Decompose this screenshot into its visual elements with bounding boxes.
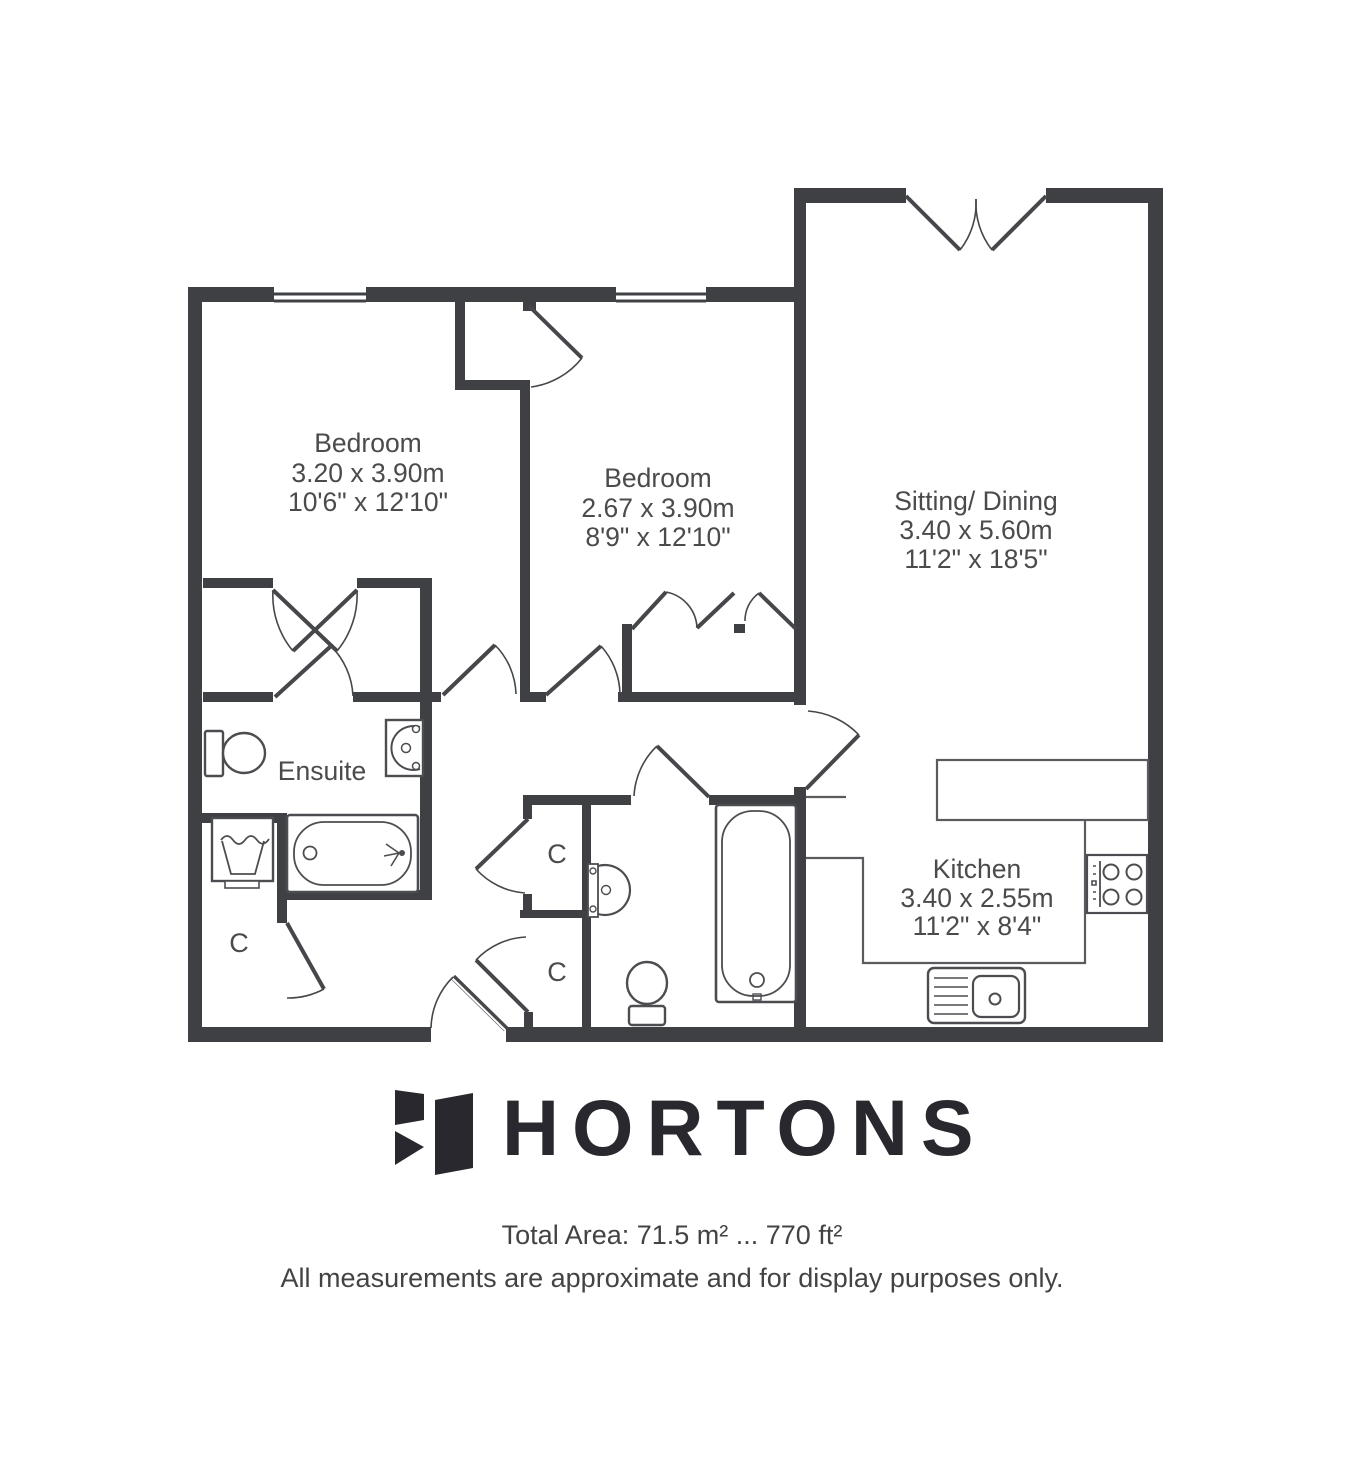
double-doors-bedroom1-wardrobe xyxy=(273,590,357,651)
room-name: Bedroom xyxy=(604,463,712,493)
window-icon xyxy=(274,287,366,303)
door-bedroom2-closet xyxy=(529,306,582,387)
door-closet-lower xyxy=(476,937,528,1012)
window-icon xyxy=(616,287,706,303)
bifold-wardrobe-doors-icon xyxy=(632,592,796,629)
floorplan-drawing: Bedroom 3.20 x 3.90m 10'6" x 12'10" Bedr… xyxy=(0,0,1350,1470)
kitchen-counter xyxy=(937,760,1148,820)
kitchen-sink-icon xyxy=(928,968,1025,1023)
room-dimensions-imperial: 10'6" x 12'10" xyxy=(288,487,448,517)
room-name: Bedroom xyxy=(314,428,422,458)
toilet-icon xyxy=(205,731,265,776)
floorplan-page: Bedroom 3.20 x 3.90m 10'6" x 12'10" Bedr… xyxy=(0,0,1350,1470)
french-doors-sitting xyxy=(906,196,1046,250)
room-dimensions-metric: 3.20 x 3.90m xyxy=(291,458,444,488)
wc-icon xyxy=(627,962,667,1025)
ensuite-fixtures xyxy=(205,720,423,892)
bathroom-fixtures xyxy=(588,805,796,1025)
label-sitting-dining: Sitting/ Dining 3.40 x 5.60m 11'2" x 18'… xyxy=(894,486,1058,574)
footer: HORTONS Total Area: 71.5 m² ... 770 ft² … xyxy=(281,1083,1064,1293)
interior-walls xyxy=(188,298,794,1027)
room-dimensions-imperial: 8'9" x 12'10" xyxy=(585,522,730,552)
label-bedroom1: Bedroom 3.20 x 3.90m 10'6" x 12'10" xyxy=(288,428,448,517)
room-dimensions-metric: 2.67 x 3.90m xyxy=(581,493,734,523)
brand-wordmark: HORTONS xyxy=(502,1083,987,1172)
door-wardrobe-to-ensuite xyxy=(275,646,353,697)
bathtub-icon xyxy=(716,805,796,1002)
bath-with-shower-icon xyxy=(287,815,418,892)
bathroom-basin-icon xyxy=(588,864,630,917)
disclaimer-text: All measurements are approximate and for… xyxy=(281,1263,1064,1293)
door-bedroom2-entry xyxy=(546,646,620,695)
label-closet-upper: C xyxy=(547,839,567,869)
washbasin-icon xyxy=(386,720,423,776)
label-closet-left: C xyxy=(229,928,249,958)
washing-machine-icon xyxy=(212,818,273,888)
hob-icon xyxy=(1087,855,1147,913)
door-closet-left xyxy=(287,923,324,998)
total-area-text: Total Area: 71.5 m² ... 770 ft² xyxy=(502,1220,843,1250)
room-dimensions-metric: 3.40 x 2.55m xyxy=(900,883,1053,913)
door-bathroom xyxy=(634,746,709,797)
door-hall-to-vestibule xyxy=(443,645,516,695)
door-closet-upper xyxy=(476,819,528,893)
room-dimensions-imperial: 11'2" x 8'4" xyxy=(913,911,1042,941)
label-bedroom2: Bedroom 2.67 x 3.90m 8'9" x 12'10" xyxy=(581,463,734,552)
label-closet-lower: C xyxy=(547,957,567,987)
label-ensuite: Ensuite xyxy=(278,756,366,786)
room-name: Sitting/ Dining xyxy=(894,486,1058,516)
hortons-logo-icon xyxy=(395,1090,473,1175)
room-dimensions-imperial: 11'2" x 18'5" xyxy=(904,544,1047,574)
door-kitchen xyxy=(806,711,859,789)
room-name: Kitchen xyxy=(933,854,1021,884)
label-kitchen: Kitchen 3.40 x 2.55m 11'2" x 8'4" xyxy=(900,854,1053,941)
entry-door xyxy=(431,977,506,1030)
room-dimensions-metric: 3.40 x 5.60m xyxy=(899,515,1052,545)
